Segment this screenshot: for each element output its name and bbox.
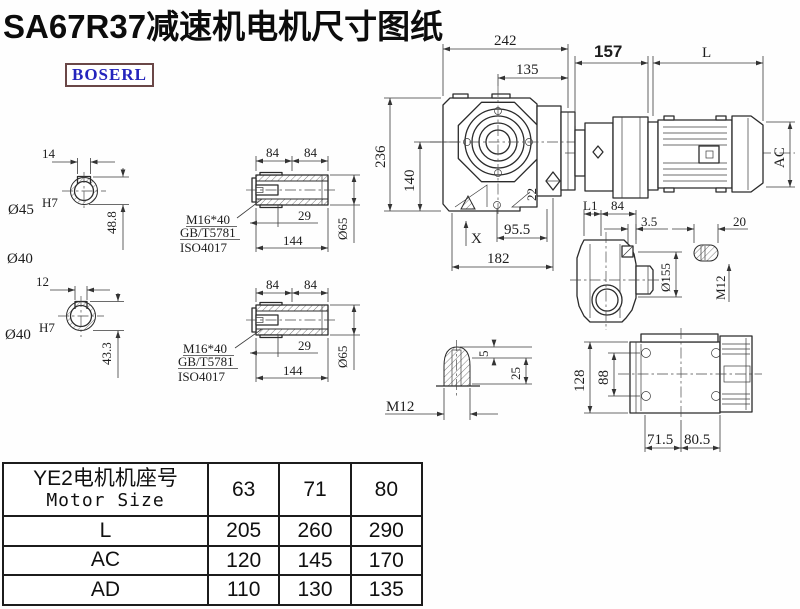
table-row: AC 120 145 170 [3, 546, 422, 576]
table-header-cell: YE2电机机座号 Motor Size [3, 463, 208, 516]
dim-bolt-span: 88 [596, 370, 612, 385]
table-row: YE2电机机座号 Motor Size 63 71 80 [3, 463, 422, 516]
dim-gearbox-to-motor: 157 [594, 42, 622, 61]
dim-depth: 25 [508, 367, 523, 380]
dim-center-to-face: 135 [516, 62, 539, 78]
drawing-sheet: SA67R37减速机电机尺寸图纸 BOSERL 14 [0, 0, 800, 609]
dim-seg2-a: 84 [304, 145, 318, 160]
dim-key-width-b: 12 [36, 274, 49, 289]
label-standard1-b: GB/T5781 [178, 354, 234, 369]
cell: 110 [208, 575, 279, 605]
dim-height-a: 48.8 [104, 211, 119, 234]
dim-bottom-a: 95.5 [504, 222, 530, 238]
label-standard1-a: GB/T5781 [180, 225, 236, 240]
row-label: L [3, 516, 208, 546]
dim-seg2-b: 84 [304, 277, 318, 292]
dim-rear-height: 128 [572, 370, 588, 393]
dim-height: 236 [373, 145, 389, 168]
view-bushing-b: 84 84 M16*40 GB/T5781 ISO4017 29 144 Ø65 [178, 277, 360, 384]
size-col-2: 80 [351, 463, 422, 516]
view-rear: 128 88 71.5 80.5 [572, 328, 762, 452]
view-hollow-shaft-b: 12 43.3 Ø40 H7 [5, 274, 124, 378]
table-row: L 205 260 290 [3, 516, 422, 546]
motor-size-table: YE2电机机座号 Motor Size 63 71 80 L 205 260 2… [2, 462, 423, 606]
view-top: L1 84 3.5 Ø155 20 M12 [570, 198, 748, 330]
dim-foot: 22 [524, 188, 539, 201]
label-thread-top: M12 [713, 275, 728, 300]
label-bore-a: Ø45 [8, 202, 34, 218]
dim-step: 5 [476, 351, 491, 358]
label-bore-tol-a: H7 [42, 195, 58, 210]
dim-axis-to-bottom: 140 [402, 170, 418, 193]
label-standard2-a: ISO4017 [180, 240, 227, 255]
view-shaft-detail: 5 25 M12 [385, 340, 532, 420]
table-header-en: Motor Size [4, 491, 207, 512]
dim-height-b: 43.3 [99, 342, 114, 365]
dim-key-len: 20 [733, 214, 746, 229]
dim-motor-dia: AC [772, 147, 788, 168]
label-x-mark: X [471, 231, 482, 247]
cell: 130 [279, 575, 350, 605]
dim-l1: L1 [583, 198, 597, 213]
dim-dia-a: Ø65 [335, 218, 350, 240]
cell: 260 [279, 516, 350, 546]
label-standard2-b: ISO4017 [178, 369, 225, 384]
dim-84: 84 [611, 198, 625, 213]
size-col-0: 63 [208, 463, 279, 516]
label-bore-b: Ø40 [5, 327, 31, 343]
dim-foot-b: 80.5 [684, 432, 710, 448]
cell: 170 [351, 546, 422, 576]
dim-foot-a: 71.5 [647, 432, 673, 448]
dim-length-a: 144 [283, 233, 303, 248]
row-label: AC [3, 546, 208, 576]
cell: 290 [351, 516, 422, 546]
size-col-1: 71 [279, 463, 350, 516]
dim-lip: 3.5 [641, 214, 657, 229]
view-hollow-shaft-a: 14 48.8 Ø45 H7 Ø40 [7, 146, 129, 267]
table-header-cn: YE2电机机座号 [4, 467, 207, 491]
cell: 135 [351, 575, 422, 605]
label-outer-dia: Ø40 [7, 251, 33, 267]
dim-key-width-a: 14 [42, 146, 56, 161]
dim-seg1-b: 84 [266, 277, 280, 292]
dim-socket-depth-b: 29 [298, 338, 311, 353]
dim-seg1-a: 84 [266, 145, 280, 160]
dim-flange-dia: Ø155 [658, 263, 673, 292]
row-label: AD [3, 575, 208, 605]
cell: 120 [208, 546, 279, 576]
dim-dia-b: Ø65 [335, 346, 350, 368]
label-bore-tol-b: H7 [39, 320, 55, 335]
dim-socket-depth-a: 29 [298, 208, 311, 223]
dim-motor-length: L [702, 45, 711, 61]
cell: 145 [279, 546, 350, 576]
label-thread-detail: M12 [386, 399, 414, 415]
view-bushing-a: 84 84 M16*40 GB/T5781 ISO4017 29 144 Ø65 [180, 145, 360, 255]
dim-width: 242 [494, 33, 517, 49]
dim-length-b: 144 [283, 363, 303, 378]
cell: 205 [208, 516, 279, 546]
dim-bottom-b: 182 [487, 251, 510, 267]
table-row: AD 110 130 135 [3, 575, 422, 605]
